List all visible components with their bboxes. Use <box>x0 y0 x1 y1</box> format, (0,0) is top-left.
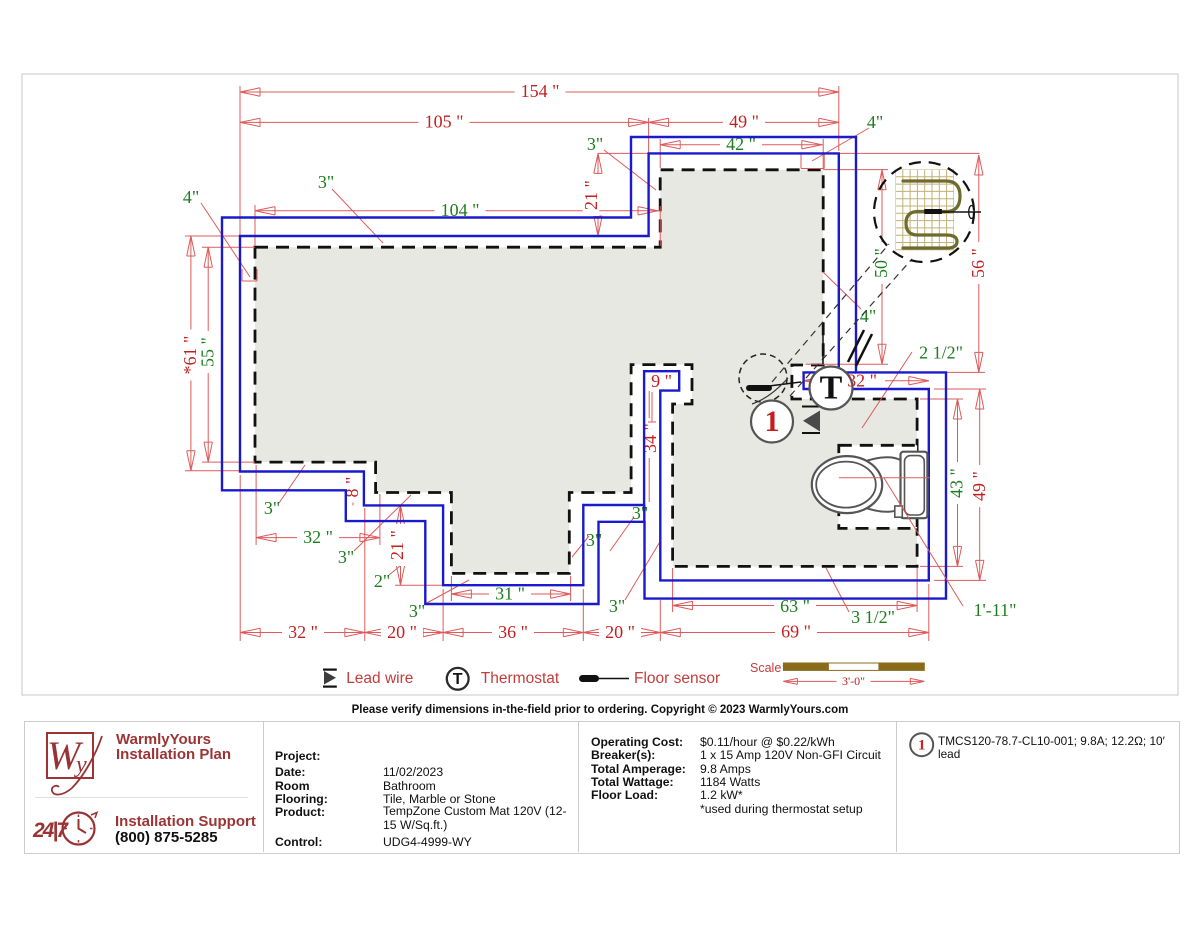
svg-text:Lead wire: Lead wire <box>346 670 413 687</box>
svg-text:3'-0": 3'-0" <box>842 674 865 688</box>
svg-text:49 ": 49 " <box>729 112 759 132</box>
svg-text:32 ": 32 " <box>847 371 877 391</box>
svg-text:Thermostat: Thermostat <box>481 670 560 687</box>
svg-text:9 ": 9 " <box>651 371 672 391</box>
svg-text:3": 3" <box>318 172 334 192</box>
svg-text:1: 1 <box>918 738 926 754</box>
svg-text:2": 2" <box>374 571 390 591</box>
svg-text:1'-11": 1'-11" <box>974 600 1017 620</box>
svg-text:36 ": 36 " <box>498 622 528 642</box>
svg-text:y: y <box>74 752 87 778</box>
svg-text:105 ": 105 " <box>425 112 464 132</box>
svg-text:4": 4" <box>867 112 883 132</box>
svg-text:3": 3" <box>338 547 354 567</box>
svg-text:Floor sensor: Floor sensor <box>634 670 720 687</box>
svg-text:21 ": 21 " <box>387 530 407 560</box>
svg-text:56 ": 56 " <box>968 248 988 278</box>
svg-text:3": 3" <box>264 498 280 518</box>
svg-text:2 1/2": 2 1/2" <box>919 343 963 363</box>
svg-text:55 ": 55 " <box>198 337 218 367</box>
svg-text:3": 3" <box>586 530 602 550</box>
svg-text:31 ": 31 " <box>495 584 525 604</box>
svg-text:20 ": 20 " <box>387 622 417 642</box>
svg-text:4": 4" <box>860 306 876 326</box>
svg-text:3 1/2": 3 1/2" <box>851 607 895 627</box>
svg-text:T: T <box>453 671 463 688</box>
svg-text:49 ": 49 " <box>969 471 989 501</box>
svg-text:43 ": 43 " <box>947 468 967 498</box>
svg-text:20 ": 20 " <box>605 622 635 642</box>
svg-text:3": 3" <box>609 596 625 616</box>
svg-text:1: 1 <box>765 405 780 438</box>
svg-text:4": 4" <box>183 187 199 207</box>
svg-text:3": 3" <box>587 134 603 154</box>
svg-text:T: T <box>820 370 843 407</box>
svg-text:32 ": 32 " <box>288 622 318 642</box>
svg-text:3": 3" <box>409 601 425 621</box>
svg-text:154 ": 154 " <box>521 81 560 101</box>
svg-text:69 ": 69 " <box>781 622 811 642</box>
svg-text:32 ": 32 " <box>303 527 333 547</box>
svg-text:21 ": 21 " <box>581 180 601 210</box>
svg-text:Scale: Scale <box>750 661 781 675</box>
